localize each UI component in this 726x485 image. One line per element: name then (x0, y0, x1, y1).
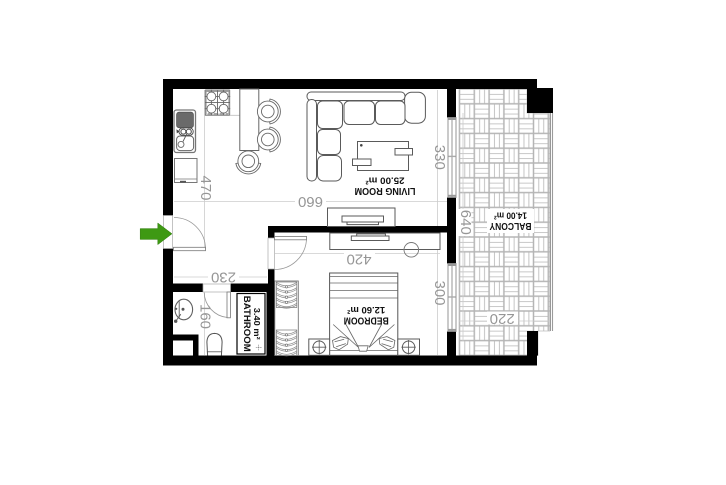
svg-text:420: 420 (346, 250, 371, 267)
svg-text:12.60 m²: 12.60 m² (347, 304, 385, 315)
svg-text:BATHROOM: BATHROOM (242, 296, 252, 352)
svg-text:BALCONY: BALCONY (489, 220, 531, 231)
svg-text:300: 300 (431, 280, 448, 305)
svg-text:25.00 m²: 25.00 m² (366, 175, 405, 186)
svg-text:660: 660 (298, 193, 323, 210)
svg-text:BEDROOM: BEDROOM (344, 314, 389, 326)
svg-text:330: 330 (431, 145, 448, 170)
svg-text:470: 470 (197, 175, 214, 200)
svg-text:3.40 m²: 3.40 m² (252, 308, 262, 340)
svg-text:160: 160 (197, 304, 214, 329)
svg-text:640: 640 (457, 210, 474, 235)
svg-text:14.00 m²: 14.00 m² (494, 209, 527, 220)
svg-text:LIVING ROOM: LIVING ROOM (355, 185, 416, 196)
svg-text:230: 230 (211, 269, 236, 286)
svg-text:220: 220 (490, 310, 515, 327)
